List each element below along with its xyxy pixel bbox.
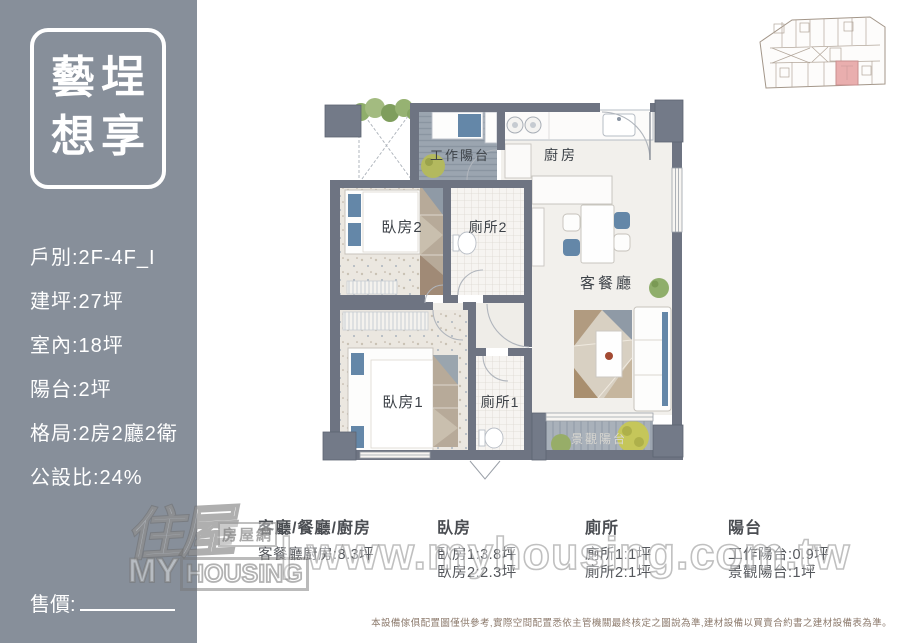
price-label: 售價:	[30, 594, 76, 616]
detail-unit-type: 戶別:2F-4F_I	[30, 241, 178, 270]
legend-row: 廁所2:1坪	[585, 565, 652, 583]
room-label-work-balcony: 工作陽台	[430, 148, 490, 163]
room-label-view-balcony: 景觀陽台	[571, 431, 627, 446]
legend-row: 客餐廳廚房:8.3坪	[258, 547, 374, 565]
flyer-page: 藝埕 想享 戶別:2F-4F_I 建坪:27坪 室內:18坪 陽台:2坪 格局:…	[0, 0, 900, 643]
detail-gross-area: 建坪:27坪	[30, 285, 178, 314]
disclaimer-text: 本設備傢俱配置圖僅供參考,實際空間配置悉依主管機關最終核定之圖說為準,建材設備以…	[371, 615, 892, 629]
detail-public-ratio: 公設比:24%	[30, 461, 178, 490]
price-blank-line	[80, 595, 175, 611]
legend-header-balconies: 陽台	[728, 514, 829, 538]
room-label-bath1: 廁所1	[481, 394, 520, 410]
room-label-bedroom2: 臥房2	[381, 219, 422, 236]
legend-col-baths: 廁所 廁所1:1坪 廁所2:1坪	[585, 514, 652, 582]
room-label-bath2: 廁所2	[469, 219, 508, 235]
legend-header-bedrooms: 臥房	[437, 514, 517, 538]
legend-col-bedrooms: 臥房 臥房1:3.8坪 臥房2:2.3坪	[437, 514, 517, 582]
floor-plan: 工作陽台 廚房 臥房2 廁所2 客餐廳 臥房1 廁所1 景觀陽台	[303, 88, 705, 483]
legend-row: 廁所1:1坪	[585, 547, 652, 565]
legend-row: 工作陽台:0.9坪	[728, 547, 829, 565]
project-title-line2: 想享	[40, 107, 162, 166]
project-title-line1: 藝埕	[40, 48, 162, 107]
detail-layout: 格局:2房2廳2衛	[30, 417, 178, 446]
price-row: 售價:	[30, 588, 175, 617]
room-label-bedroom1: 臥房1	[382, 394, 423, 411]
legend-header-living: 客廳/餐廳/廚房	[258, 514, 374, 538]
legend-col-living: 客廳/餐廳/廚房 客餐廳廚房:8.3坪	[258, 514, 374, 565]
legend-row: 景觀陽台:1坪	[728, 565, 829, 583]
legend-row: 臥房2:2.3坪	[437, 565, 517, 583]
project-title-box: 藝埕 想享	[30, 28, 166, 189]
room-label-living-dining: 客餐廳	[580, 274, 634, 292]
building-key-plan	[752, 10, 894, 102]
room-label-kitchen: 廚房	[544, 147, 578, 163]
sidebar: 藝埕 想享 戶別:2F-4F_I 建坪:27坪 室內:18坪 陽台:2坪 格局:…	[0, 0, 197, 643]
detail-balcony-area: 陽台:2坪	[30, 373, 178, 402]
legend-row: 臥房1:3.8坪	[437, 547, 517, 565]
detail-indoor-area: 室內:18坪	[30, 329, 178, 358]
unit-details: 戶別:2F-4F_I 建坪:27坪 室內:18坪 陽台:2坪 格局:2房2廳2衛…	[30, 241, 178, 505]
legend-header-baths: 廁所	[585, 514, 652, 538]
legend-col-balconies: 陽台 工作陽台:0.9坪 景觀陽台:1坪	[728, 514, 829, 582]
